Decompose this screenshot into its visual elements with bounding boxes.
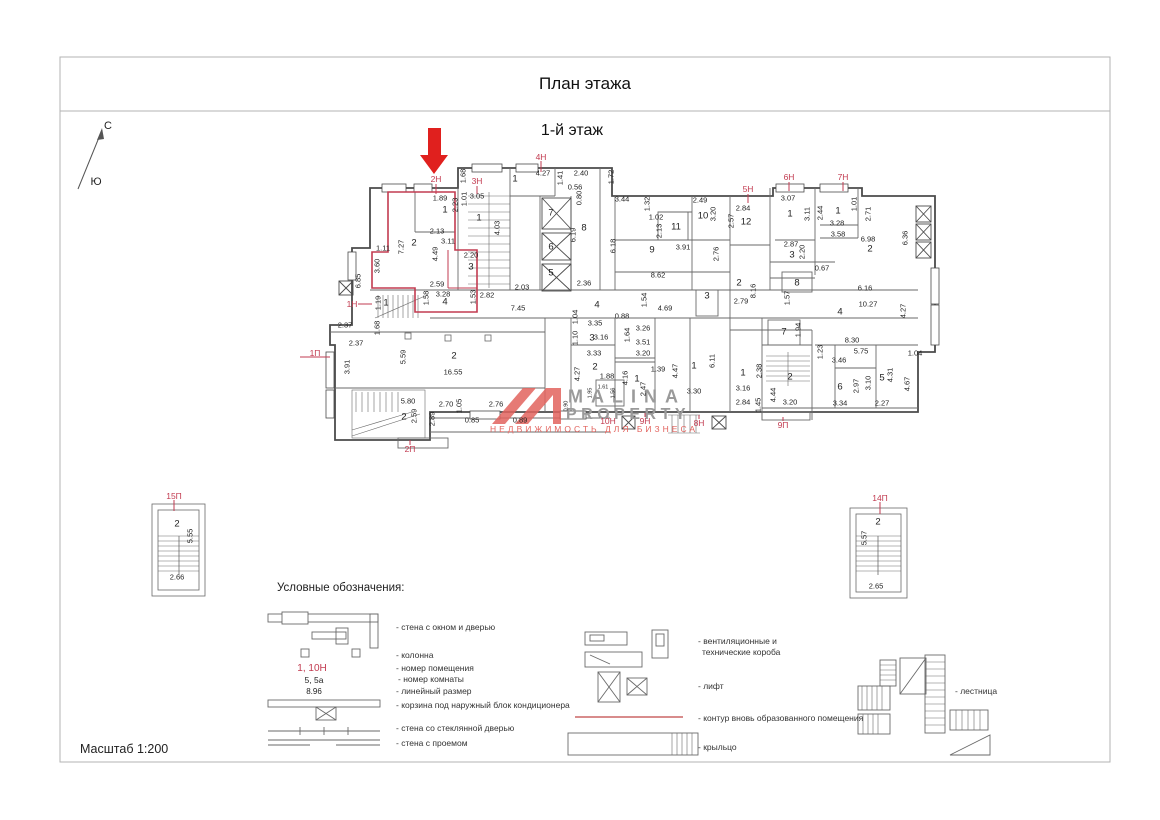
room-number: 5 [548, 268, 553, 278]
dimension-label: 3.91 [676, 243, 691, 251]
room-number: 7 [548, 208, 553, 218]
dimension-label: 1.23 [816, 345, 824, 360]
legend-title: Условные обозначения: [277, 582, 404, 594]
dimension-label: 0.56 [568, 183, 583, 191]
dimension-label: 1.10 [571, 331, 579, 346]
dimension-label: 1.39 [651, 365, 666, 373]
dimension-label: 1.05 [455, 399, 463, 414]
dimension-label: 7.27 [397, 240, 405, 255]
legend-sample-room: 5, 5а [305, 676, 324, 685]
watermark-brand-top: MALINA [568, 387, 686, 408]
unit-label: 2Н [431, 175, 442, 184]
dimension-label: 4.69 [658, 304, 673, 312]
dimension-label: 3.05 [470, 192, 485, 200]
unit-label: 2П [405, 445, 416, 454]
unit-label: 14П [872, 494, 888, 503]
dimension-label: 1.11 [376, 244, 390, 252]
room-number: 1 [691, 361, 696, 371]
floor-label: 1-й этаж [541, 122, 603, 140]
watermark-tagline: НЕДВИЖИМОСТЬ ДЛЯ БИЗНЕСА [490, 424, 698, 434]
highlight-arrow-icon [420, 128, 448, 174]
dimension-label: 4.44 [769, 388, 777, 403]
dimension-label: 3.91 [343, 360, 351, 375]
column-icons [405, 333, 491, 341]
page-title: План этажа [539, 74, 631, 94]
floor-plan-sheet: План этажа 1-й этаж С Ю Масштаб 1:200 Ус… [0, 0, 1160, 820]
unit-label: 7Н [838, 173, 849, 182]
legend-item-label: - линейный размер [396, 686, 472, 696]
room-number: 1 [835, 206, 840, 216]
dimension-label: 1.61 [598, 385, 609, 391]
room-number: 12 [741, 217, 752, 227]
unit-label: 1П [310, 349, 321, 358]
dimension-label: 2.03 [515, 283, 530, 291]
room-number: 2 [401, 412, 406, 422]
dimension-label: 4.67 [903, 377, 911, 392]
unit-label: 9Н [640, 417, 651, 426]
dimension-label: 3.34 [833, 399, 848, 407]
dimension-label: 1.72 [607, 170, 615, 185]
legend-item-label: - лифт [698, 681, 724, 691]
dimension-label: 3.58 [831, 230, 846, 238]
dimension-label: 1.04 [908, 349, 923, 357]
dimension-label: 3.35 [588, 319, 603, 327]
dimension-label: 4.16 [621, 371, 629, 386]
legend-item-label: - лестница [955, 686, 997, 696]
dimension-label: 2.13 [430, 227, 445, 235]
dimension-label: 2.59 [410, 409, 418, 424]
room-number: 4 [442, 297, 447, 307]
room-number: 2 [174, 519, 179, 529]
legend-sample-unit: 1, 10Н [297, 664, 326, 674]
room-number: 3 [468, 262, 473, 272]
dimension-label: 3.07 [781, 194, 796, 202]
dimension-label: 2.37 [338, 321, 353, 329]
room-number: 9 [649, 245, 654, 255]
dimension-label: 7.45 [511, 304, 526, 312]
room-number: 2 [736, 278, 741, 288]
dimension-label: 2.59 [430, 280, 445, 288]
room-number: 1 [476, 213, 481, 223]
dimension-label: 2.57 [727, 214, 735, 229]
dimension-label: 1.56 [611, 388, 617, 399]
dimension-label: 0.85 [465, 416, 480, 424]
dimension-label: 3.51 [636, 338, 651, 346]
legend-item-label: - вентиляционные и [698, 636, 777, 646]
room-number: 6 [837, 382, 842, 392]
dimension-label: 1.64 [623, 328, 631, 343]
room-number: 4 [837, 307, 842, 317]
dimension-label: 3.60 [373, 259, 381, 274]
dimension-label: 2.37 [349, 339, 364, 347]
unit-label: 1Н [347, 300, 358, 309]
legend-item-label: - корзина под наружный блок кондиционера [396, 700, 570, 710]
room-number: 2 [867, 244, 872, 254]
dimension-label: 2.47 [639, 382, 647, 397]
room-number: 1 [787, 209, 792, 219]
dimension-label: 0.88 [615, 312, 630, 320]
dimension-label: 3.11 [441, 237, 455, 245]
unit-label: 6Н [784, 173, 795, 182]
dimension-label: 2.70 [439, 400, 454, 408]
room-number: 2 [787, 372, 792, 382]
dimension-label: 2.65 [869, 582, 884, 590]
dimension-label: 4.27 [899, 304, 907, 319]
dimension-label: 3.10 [864, 376, 872, 391]
dimension-label: 2.40 [574, 169, 589, 177]
dimension-label: 6.98 [861, 235, 876, 243]
legend-item-label: - номер комнаты [398, 674, 464, 684]
dimension-label: 2.84 [736, 398, 751, 406]
dimension-label: 0.67 [815, 264, 830, 272]
dimension-label: 2.89 [428, 412, 436, 427]
dimension-label: 1.01 [460, 192, 468, 207]
dimension-label: 2.82 [480, 291, 495, 299]
dimension-label: 3.16 [594, 333, 609, 341]
dimension-label: 4.47 [671, 364, 679, 379]
dimension-label: 6.16 [858, 284, 873, 292]
room-number: 5 [879, 373, 884, 383]
dimension-label: 5.75 [854, 347, 869, 355]
dimension-label: 1.94 [794, 323, 802, 338]
dimension-label: 3.28 [436, 290, 451, 298]
dimension-label: 3.20 [709, 207, 717, 222]
legend-item-label: - стена со стеклянной дверью [396, 723, 514, 733]
unit-label: 9П [778, 421, 789, 430]
legend-sample-dim: 8.96 [306, 688, 322, 696]
legend-item-label: - контур вновь образованного помещения [698, 713, 863, 723]
dimension-label: 5.59 [399, 350, 407, 365]
legend-item-label: - стена с окном и дверью [396, 622, 495, 632]
dimension-label: 1.45 [754, 398, 762, 413]
dimension-label: 0.90 [564, 401, 570, 412]
room-number: 1 [442, 205, 447, 215]
dimension-label: 16.55 [444, 368, 463, 376]
dimension-label: 6.85 [354, 274, 362, 289]
dimension-label: 2.36 [577, 279, 592, 287]
room-number: 1 [512, 174, 517, 184]
windows [326, 164, 939, 419]
scale-label: Масштаб 1:200 [80, 742, 168, 756]
dimension-label: 2.20 [464, 251, 479, 259]
dimension-label: 5.57 [860, 531, 868, 546]
room-number: 3 [789, 250, 794, 260]
dimension-label: 8.30 [845, 336, 860, 344]
dimension-label: 8.16 [749, 284, 757, 299]
dimension-label: 3.26 [636, 324, 651, 332]
compass-south-label: Ю [90, 176, 101, 188]
dimension-label: 4.27 [573, 367, 581, 382]
dimension-label: 1.57 [783, 291, 791, 306]
unit-label: 10Н [600, 417, 616, 426]
dimension-label: 2.23 [451, 198, 459, 213]
dimension-label: 1.53 [469, 290, 477, 305]
dimension-label: 3.33 [587, 349, 602, 357]
dimension-label: 3.16 [736, 384, 751, 392]
dimension-label: 2.71 [864, 207, 872, 222]
dimension-label: 3.28 [830, 219, 845, 227]
dimension-label: 2.38 [755, 364, 763, 379]
dimension-label: 3.46 [832, 356, 847, 364]
legend-item-label: - крыльцо [698, 742, 737, 752]
dimension-label: 5.55 [186, 529, 194, 544]
unit-label: 8Н [694, 419, 705, 428]
unit-label-ticks [174, 161, 880, 514]
room-number: 1 [383, 298, 388, 308]
dimension-label: 6.11 [708, 354, 716, 368]
room-number: 2 [592, 362, 597, 372]
dimension-label: 4.03 [493, 221, 501, 236]
dimension-label: 2.76 [712, 247, 720, 262]
dimension-label: 1.02 [649, 213, 664, 221]
legend-item-label: - стена с проемом [396, 738, 468, 748]
dimension-label: 2.27 [875, 399, 890, 407]
room-number: 11 [671, 222, 681, 232]
room-number: 2 [451, 351, 456, 361]
dimension-label: 3.44 [615, 195, 630, 203]
unit-label: 4Н [536, 153, 547, 162]
dimension-label: 4.31 [886, 368, 894, 383]
dimension-label: 2.97 [852, 379, 860, 394]
unit-label: 3Н [472, 177, 483, 186]
dimension-label: 1.04 [571, 310, 579, 325]
dimension-label: 1.19 [374, 296, 382, 311]
dimension-label: 2.79 [734, 297, 749, 305]
dimension-label: 1.32 [643, 197, 651, 212]
dimension-label: 6.19 [569, 228, 577, 243]
room-number: 2 [875, 517, 880, 527]
dimension-label: 2.49 [693, 196, 708, 204]
dimension-label: 8.62 [651, 271, 666, 279]
unit-label: 15П [166, 492, 182, 501]
room-number: 8 [794, 278, 799, 288]
room-number: 2 [411, 238, 416, 248]
dimension-label: 10.27 [859, 300, 878, 308]
unit-label: 5Н [743, 185, 754, 194]
room-number: 7 [781, 327, 786, 337]
dimension-label: 5.80 [401, 397, 416, 405]
room-number: 4 [594, 300, 599, 310]
legend-symbols-left [268, 612, 380, 745]
dimension-label: 1.89 [433, 194, 448, 202]
dimension-label: 1.41 [556, 171, 564, 186]
dimension-label: 1.68 [459, 169, 467, 184]
dimension-label: 1.54 [640, 293, 648, 308]
dimension-label: 3.30 [687, 387, 702, 395]
dimension-label: 2.84 [736, 204, 751, 212]
dimension-label: 2.44 [816, 206, 824, 221]
dimension-label: 0.80 [575, 191, 583, 206]
dimension-label: 3.20 [636, 349, 651, 357]
dimension-label: 6.18 [609, 239, 617, 254]
room-number: 10 [698, 211, 709, 221]
dimension-label: 3.20 [783, 398, 798, 406]
watermark-brand-bottom: PROPERTY [566, 406, 690, 424]
dimension-label: 2.20 [798, 245, 806, 260]
room-number: 8 [581, 223, 586, 233]
legend-item-label: технические короба [702, 647, 780, 657]
dimension-label: 2.76 [489, 400, 504, 408]
dimension-label: 1.88 [600, 372, 615, 380]
dimension-label: 3.11 [803, 207, 811, 221]
dimension-label: 1.01 [850, 197, 858, 212]
dimension-label: 4.49 [431, 247, 439, 262]
compass-north-label: С [104, 120, 112, 132]
dimension-label: 6.36 [901, 231, 909, 246]
legend-item-label: - номер помещения [396, 663, 474, 673]
dimension-label: 1.95 [588, 388, 594, 399]
room-number: 3 [704, 291, 709, 301]
dimension-label: 2.87 [784, 240, 799, 248]
dimension-label: 4.27 [536, 169, 551, 177]
room-number: 6 [548, 242, 553, 252]
dimension-label: 1.68 [373, 321, 381, 336]
dimension-label: 2.66 [170, 573, 185, 581]
dimension-label: 2.13 [655, 224, 663, 239]
room-number: 1 [740, 368, 745, 378]
dimension-label: 1.58 [422, 291, 430, 306]
dimension-label: 0.89 [513, 416, 528, 424]
legend-item-label: - колонна [396, 650, 433, 660]
